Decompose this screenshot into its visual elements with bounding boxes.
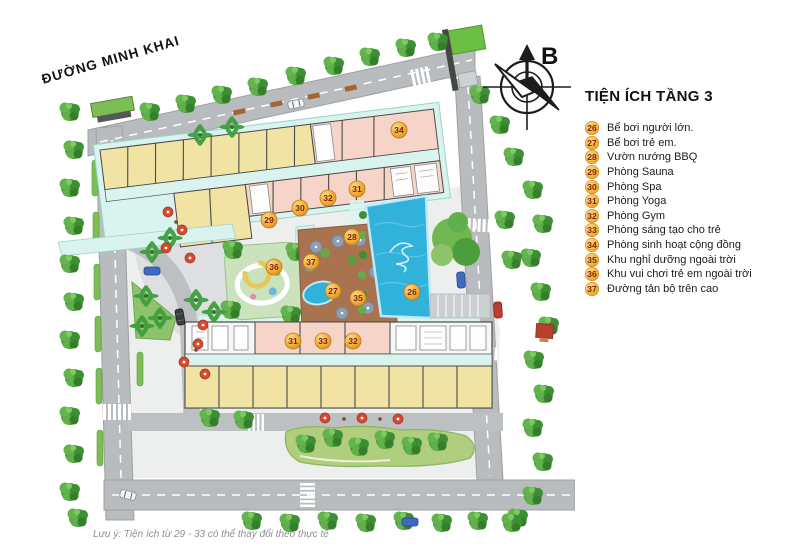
legend-badge: 34 [585,238,599,252]
legend-badge: 27 [585,136,599,150]
svg-text:28: 28 [347,232,357,242]
svg-text:35: 35 [353,293,363,303]
legend-item: 29 Phòng Sauna [585,165,797,180]
legend-label: Phòng sinh hoạt cộng đồng [607,239,741,251]
legend-item: 31 Phòng Yoga [585,194,797,209]
legend-item: 36 Khu vui chơi trẻ em ngoài trời [585,267,797,282]
plan-marker: 32 [320,190,336,206]
legend-label: Khu vui chơi trẻ em ngoài trời [607,268,752,280]
legend-badge: 26 [585,121,599,135]
legend-label: Đường tản bộ trên cao [607,283,718,295]
svg-text:29: 29 [264,215,274,225]
legend-badge: 31 [585,194,599,208]
legend-label: Phòng Spa [607,181,661,193]
svg-text:37: 37 [306,257,316,267]
legend-item: 26 Bể bơi người lớn. [585,121,797,136]
plan-marker: 31 [349,181,365,197]
svg-text:26: 26 [407,287,417,297]
legend-badge: 35 [585,253,599,267]
svg-text:27: 27 [328,286,338,296]
plan-marker: 31 [285,333,301,349]
site-plan-drawing: B 3431323029283736273526313332 [0,0,575,551]
site-plan: B 3431323029283736273526313332 [0,0,575,551]
legend-label: Phòng Sauna [607,166,674,178]
plan-marker: 35 [350,290,366,306]
svg-text:30: 30 [295,203,305,213]
footnote: Lưu ý: Tiện ích từ 29 - 33 có thể thay đ… [93,529,329,540]
plan-marker: 37 [303,254,319,270]
legend-item: 30 Phòng Spa [585,179,797,194]
plan-marker: 27 [325,283,341,299]
legend-badge: 30 [585,180,599,194]
plan-marker: 29 [261,212,277,228]
svg-text:33: 33 [318,336,328,346]
legend-panel: TIỆN ÍCH TẦNG 3 26 Bể bơi người lớn. 27 … [585,88,797,296]
svg-text:32: 32 [323,193,333,203]
plan-marker: 34 [391,122,407,138]
plan-marker: 30 [292,200,308,216]
legend-badge: 29 [585,165,599,179]
legend-badge: 37 [585,282,599,296]
svg-text:36: 36 [269,262,279,272]
legend-list: 26 Bể bơi người lớn. 27 Bể bơi trẻ em. 2… [585,121,797,296]
svg-text:34: 34 [394,125,404,135]
plan-marker: 26 [404,284,420,300]
legend-item: 37 Đường tản bộ trên cao [585,282,797,297]
legend-label: Bể bơi người lớn. [607,122,694,134]
legend-item: 35 Khu nghỉ dưỡng ngoài trời [585,252,797,267]
legend-item: 27 Bể bơi trẻ em. [585,136,797,151]
legend-label: Vườn nướng BBQ [607,151,697,163]
legend-label: Bể bơi trẻ em. [607,137,677,149]
plan-marker: 28 [344,229,360,245]
svg-text:32: 32 [348,336,358,346]
legend-label: Khu nghỉ dưỡng ngoài trời [607,254,736,266]
green-island-south [285,426,474,466]
legend-item: 33 Phòng sáng tạo cho trẻ [585,223,797,238]
plan-marker: 32 [345,333,361,349]
plan-marker: 36 [266,259,282,275]
legend-label: Phòng sáng tạo cho trẻ [607,224,721,236]
svg-text:31: 31 [352,184,362,194]
lower-building [185,322,492,408]
legend-badge: 28 [585,150,599,164]
legend-item: 34 Phòng sinh hoạt cộng đồng [585,238,797,253]
plan-marker: 33 [315,333,331,349]
legend-item: 28 Vườn nướng BBQ [585,150,797,165]
legend-badge: 33 [585,223,599,237]
legend-label: Phòng Yoga [607,195,666,207]
legend-badge: 32 [585,209,599,223]
legend-title: TIỆN ÍCH TẦNG 3 [585,88,797,105]
compass-north-label: B [541,43,558,70]
legend-badge: 36 [585,267,599,281]
kiosk [535,323,553,342]
svg-text:31: 31 [288,336,298,346]
entrance-gate [91,96,136,123]
page: B 3431323029283736273526313332 ĐƯỜNG MIN… [0,0,800,551]
legend-item: 32 Phòng Gym [585,209,797,224]
legend-label: Phòng Gym [607,210,665,222]
